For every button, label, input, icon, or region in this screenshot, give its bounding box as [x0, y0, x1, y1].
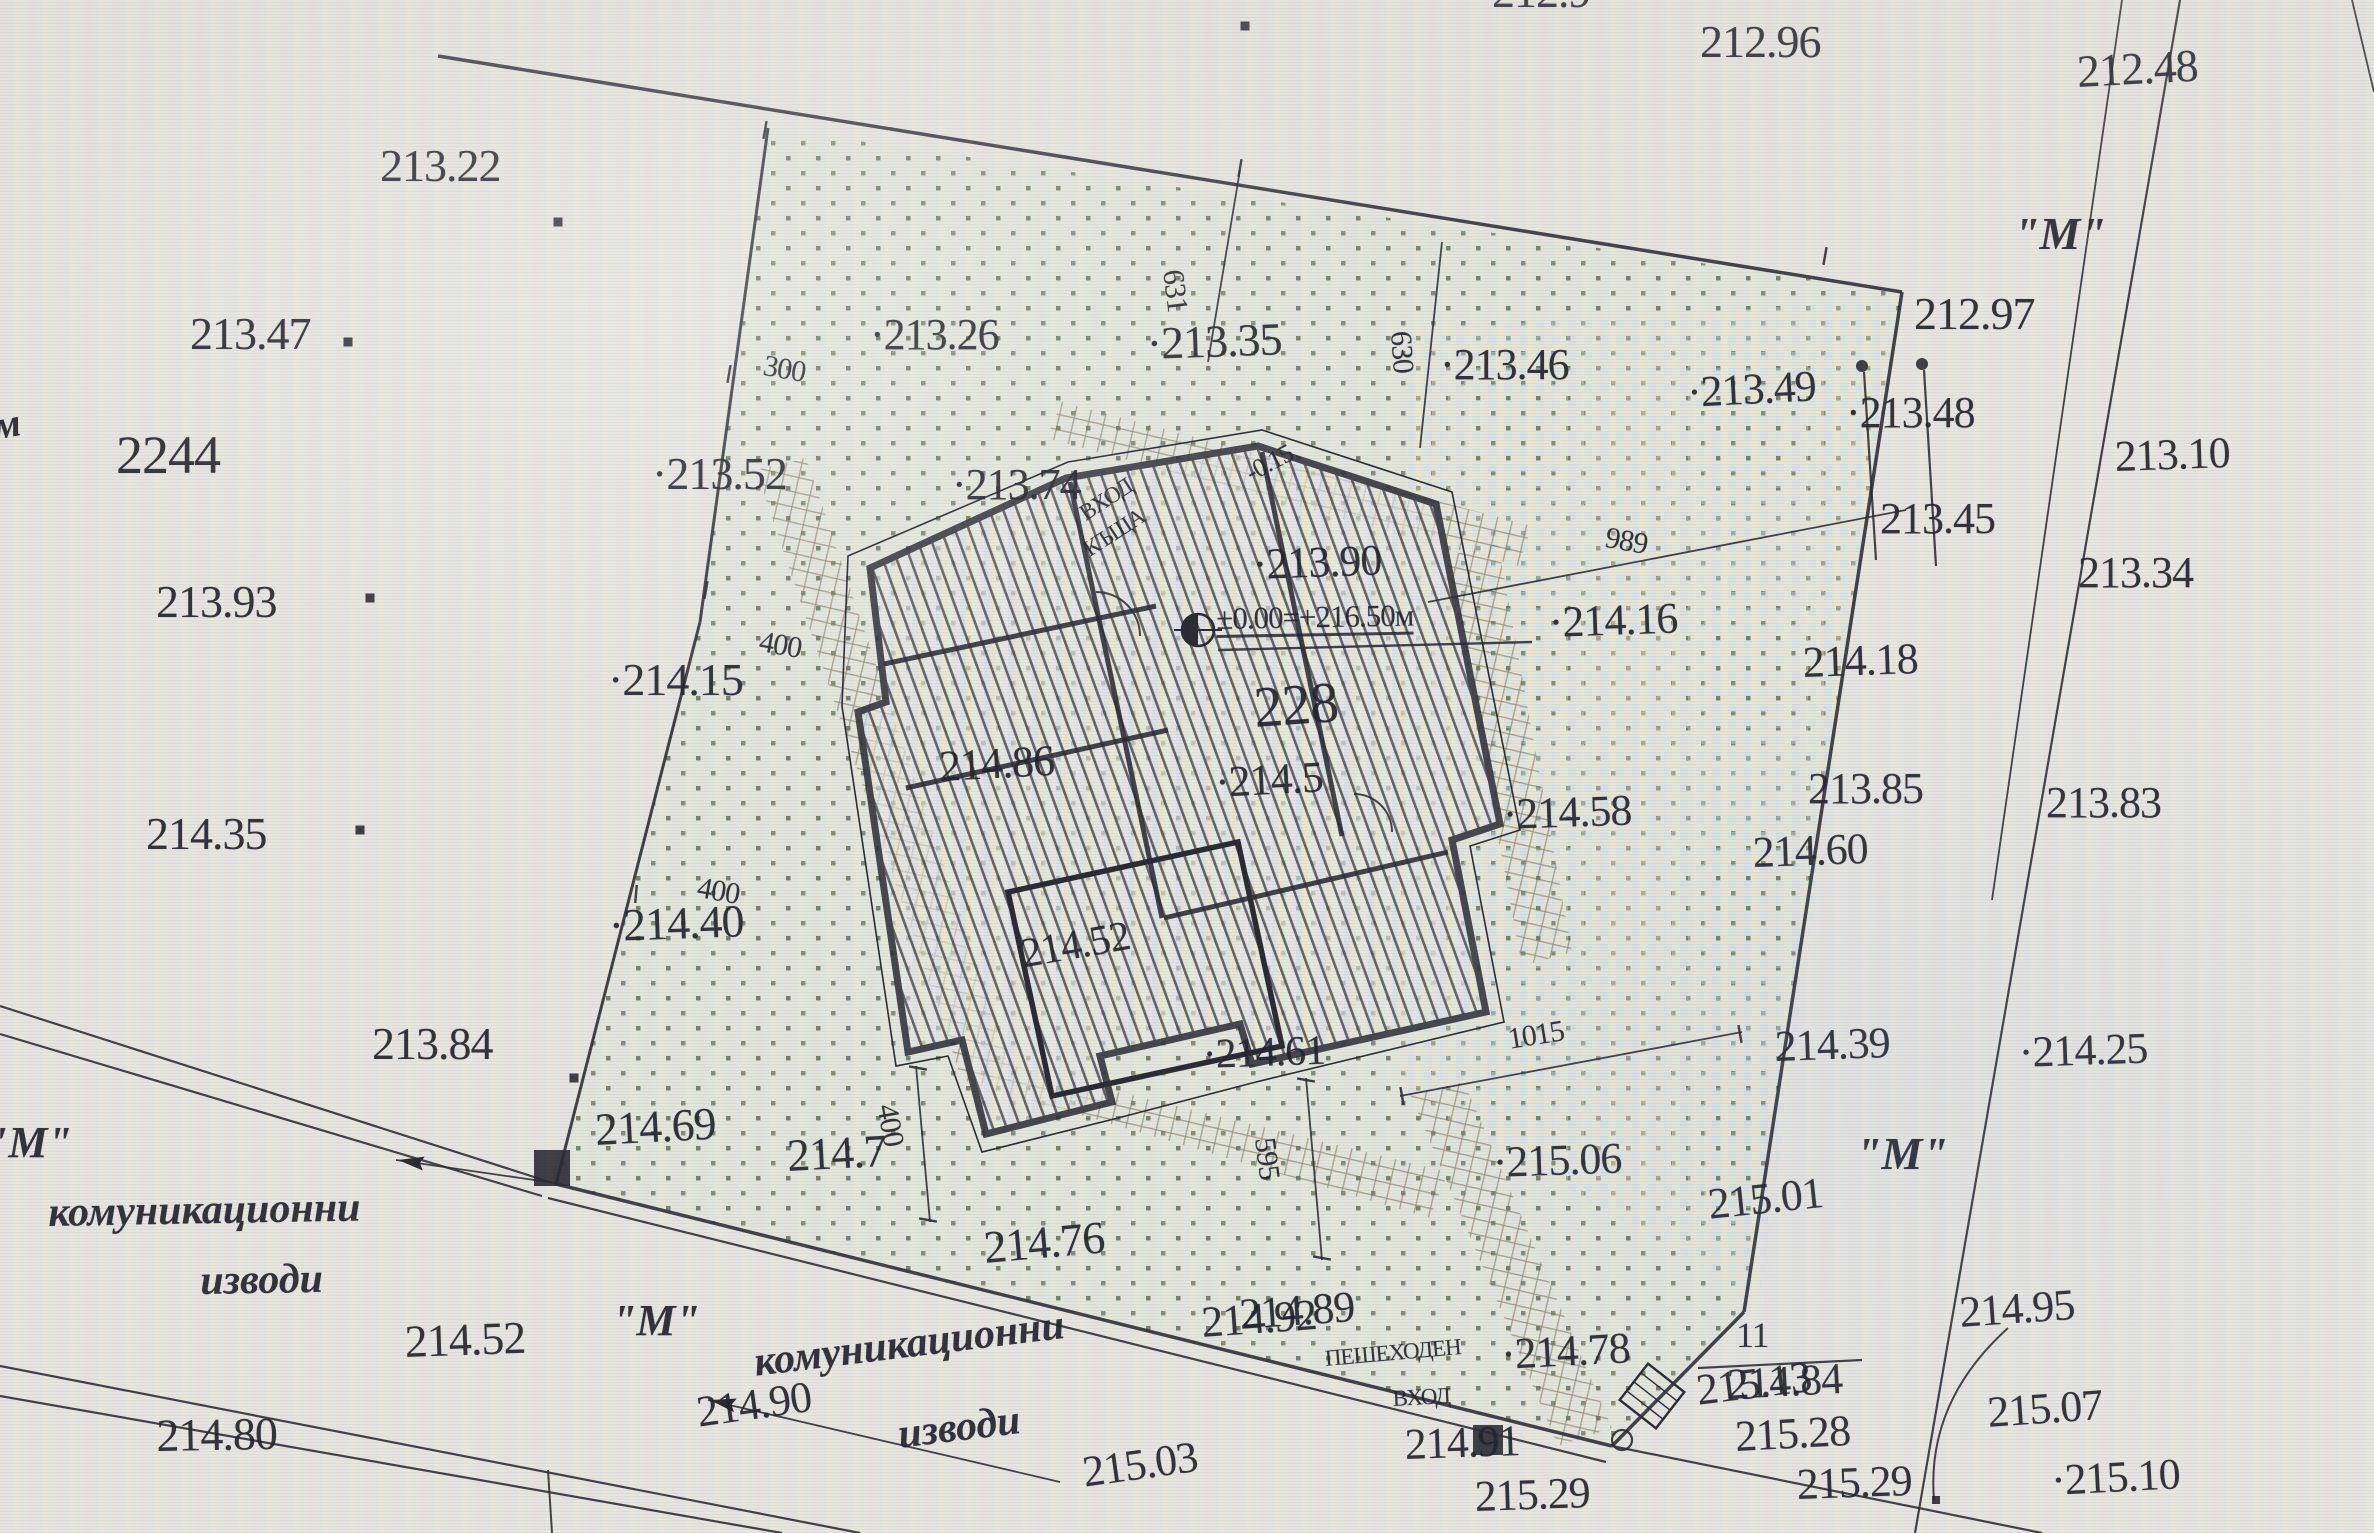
level-mark: ±0.00=+216.50м: [1216, 601, 1414, 639]
elevation: 214.39: [1774, 1022, 1890, 1068]
m-mark-road: "М": [612, 1300, 700, 1342]
elevation: 214.18: [1802, 638, 1918, 684]
elevation: ·215.06: [1492, 1138, 1622, 1184]
street-note-2a: комуникационни: [752, 1306, 1067, 1384]
elevation: ·213.90: [1252, 540, 1382, 586]
elevation: 214.60: [1752, 828, 1868, 874]
elevation: 214.80: [156, 1412, 277, 1458]
elevation: ·213.35: [1146, 317, 1282, 365]
elevation: ·214.40: [608, 899, 744, 947]
elevation: 212.96: [1700, 20, 1821, 64]
elevation: ·214.15: [608, 658, 743, 702]
dim-1015: 1015: [1506, 1017, 1566, 1054]
elevation: 213.85: [1808, 768, 1923, 810]
elevation: ·214.61: [1202, 1032, 1326, 1076]
elevation: ·214.25: [2018, 1028, 2148, 1074]
elevation: 214.92: [1200, 1294, 1318, 1344]
elevation: 214.90: [694, 1376, 814, 1433]
elevation: 215.28: [1734, 1410, 1851, 1458]
level-mark-entry: -0.15: [1242, 441, 1297, 486]
elevation-cut-top: 212.9: [1492, 0, 1591, 14]
building-number: 228: [1252, 674, 1340, 735]
street-note-1b: изводи: [200, 1260, 323, 1302]
elevation: ·214.78: [1500, 1327, 1631, 1375]
room-elevation: 214.52: [1018, 917, 1133, 975]
manhole-id: 11: [1736, 1318, 1769, 1352]
elevation: ·213.46: [1440, 344, 1569, 386]
dim-300: 300: [761, 352, 807, 387]
parcel-number: 2244: [116, 430, 220, 481]
dim-989: 989: [1603, 524, 1649, 559]
pedestrian-entrance-label-2: ВХОД: [1392, 1385, 1450, 1410]
elevation: 212.97: [1914, 292, 2035, 336]
elevation: 214.35: [146, 812, 267, 856]
elevation: ·215.10: [2050, 1453, 2181, 1501]
m-mark-left: "М": [0, 1122, 72, 1164]
elevation: 213.10: [2114, 432, 2230, 478]
elevation: ·214.58: [1502, 790, 1632, 836]
label-layer: 212.9212.96212.48"М"212.97·213.48213.102…: [0, 0, 2374, 1533]
dim-630: 630: [1386, 330, 1417, 374]
elevation: 215.07: [1986, 1384, 2104, 1434]
elevation: 214.76: [982, 1215, 1106, 1269]
dim-400-west: 400: [757, 628, 803, 663]
pedestrian-entrance-label-1: ПЕШЕХОДЕН: [1324, 1336, 1462, 1370]
elevation: 214.7: [786, 1129, 887, 1178]
elevation: ·213.26: [870, 314, 999, 356]
elevation: 213.47: [190, 312, 311, 356]
m-mark-top-right: "М": [2014, 212, 2106, 256]
elevation: 213.84: [372, 1022, 493, 1066]
elevation: ·214.16: [1548, 598, 1678, 644]
cadastral-survey-scan: 212.9212.96212.48"М"212.97·213.48213.102…: [0, 0, 2374, 1533]
elevation: 215.29: [1796, 1460, 1912, 1506]
elevation: 213.22: [380, 144, 501, 188]
elevation: 212.48: [2076, 44, 2199, 94]
dim-400-south: 400: [872, 1102, 907, 1148]
elevation: 215.29: [1474, 1472, 1590, 1518]
elevation: ·213.48: [1846, 392, 1975, 434]
elevation: 215.01: [1706, 1172, 1825, 1226]
elevation: ·213.74: [952, 464, 1081, 506]
elevation: ·214.5: [1214, 756, 1324, 803]
elevation: 213.83: [2046, 782, 2161, 824]
elevation: 213.45: [1880, 498, 1995, 540]
elevation: 214.52: [404, 1316, 526, 1364]
street-note-1a: комуникационни: [48, 1189, 361, 1234]
elevation: 213.34: [2078, 552, 2193, 594]
elevation: 214.91: [1404, 1420, 1520, 1466]
elevation: 214.95: [1958, 1284, 2076, 1334]
elevation: 214.69: [594, 1102, 717, 1152]
elevation: 214.86: [938, 740, 1055, 788]
m-mark-top-left: м: [0, 403, 24, 445]
dim-595: 595: [1250, 1136, 1283, 1181]
dim-631: 631: [1158, 268, 1191, 313]
elevation: ·213.49: [1686, 365, 1817, 413]
elevation: 215.03: [1080, 1436, 1200, 1493]
elevation: 213.93: [156, 580, 277, 624]
street-note-2b: изводи: [896, 1401, 1023, 1456]
m-mark-right: "М": [1856, 1132, 1948, 1176]
elevation: ·213.52: [652, 452, 787, 496]
